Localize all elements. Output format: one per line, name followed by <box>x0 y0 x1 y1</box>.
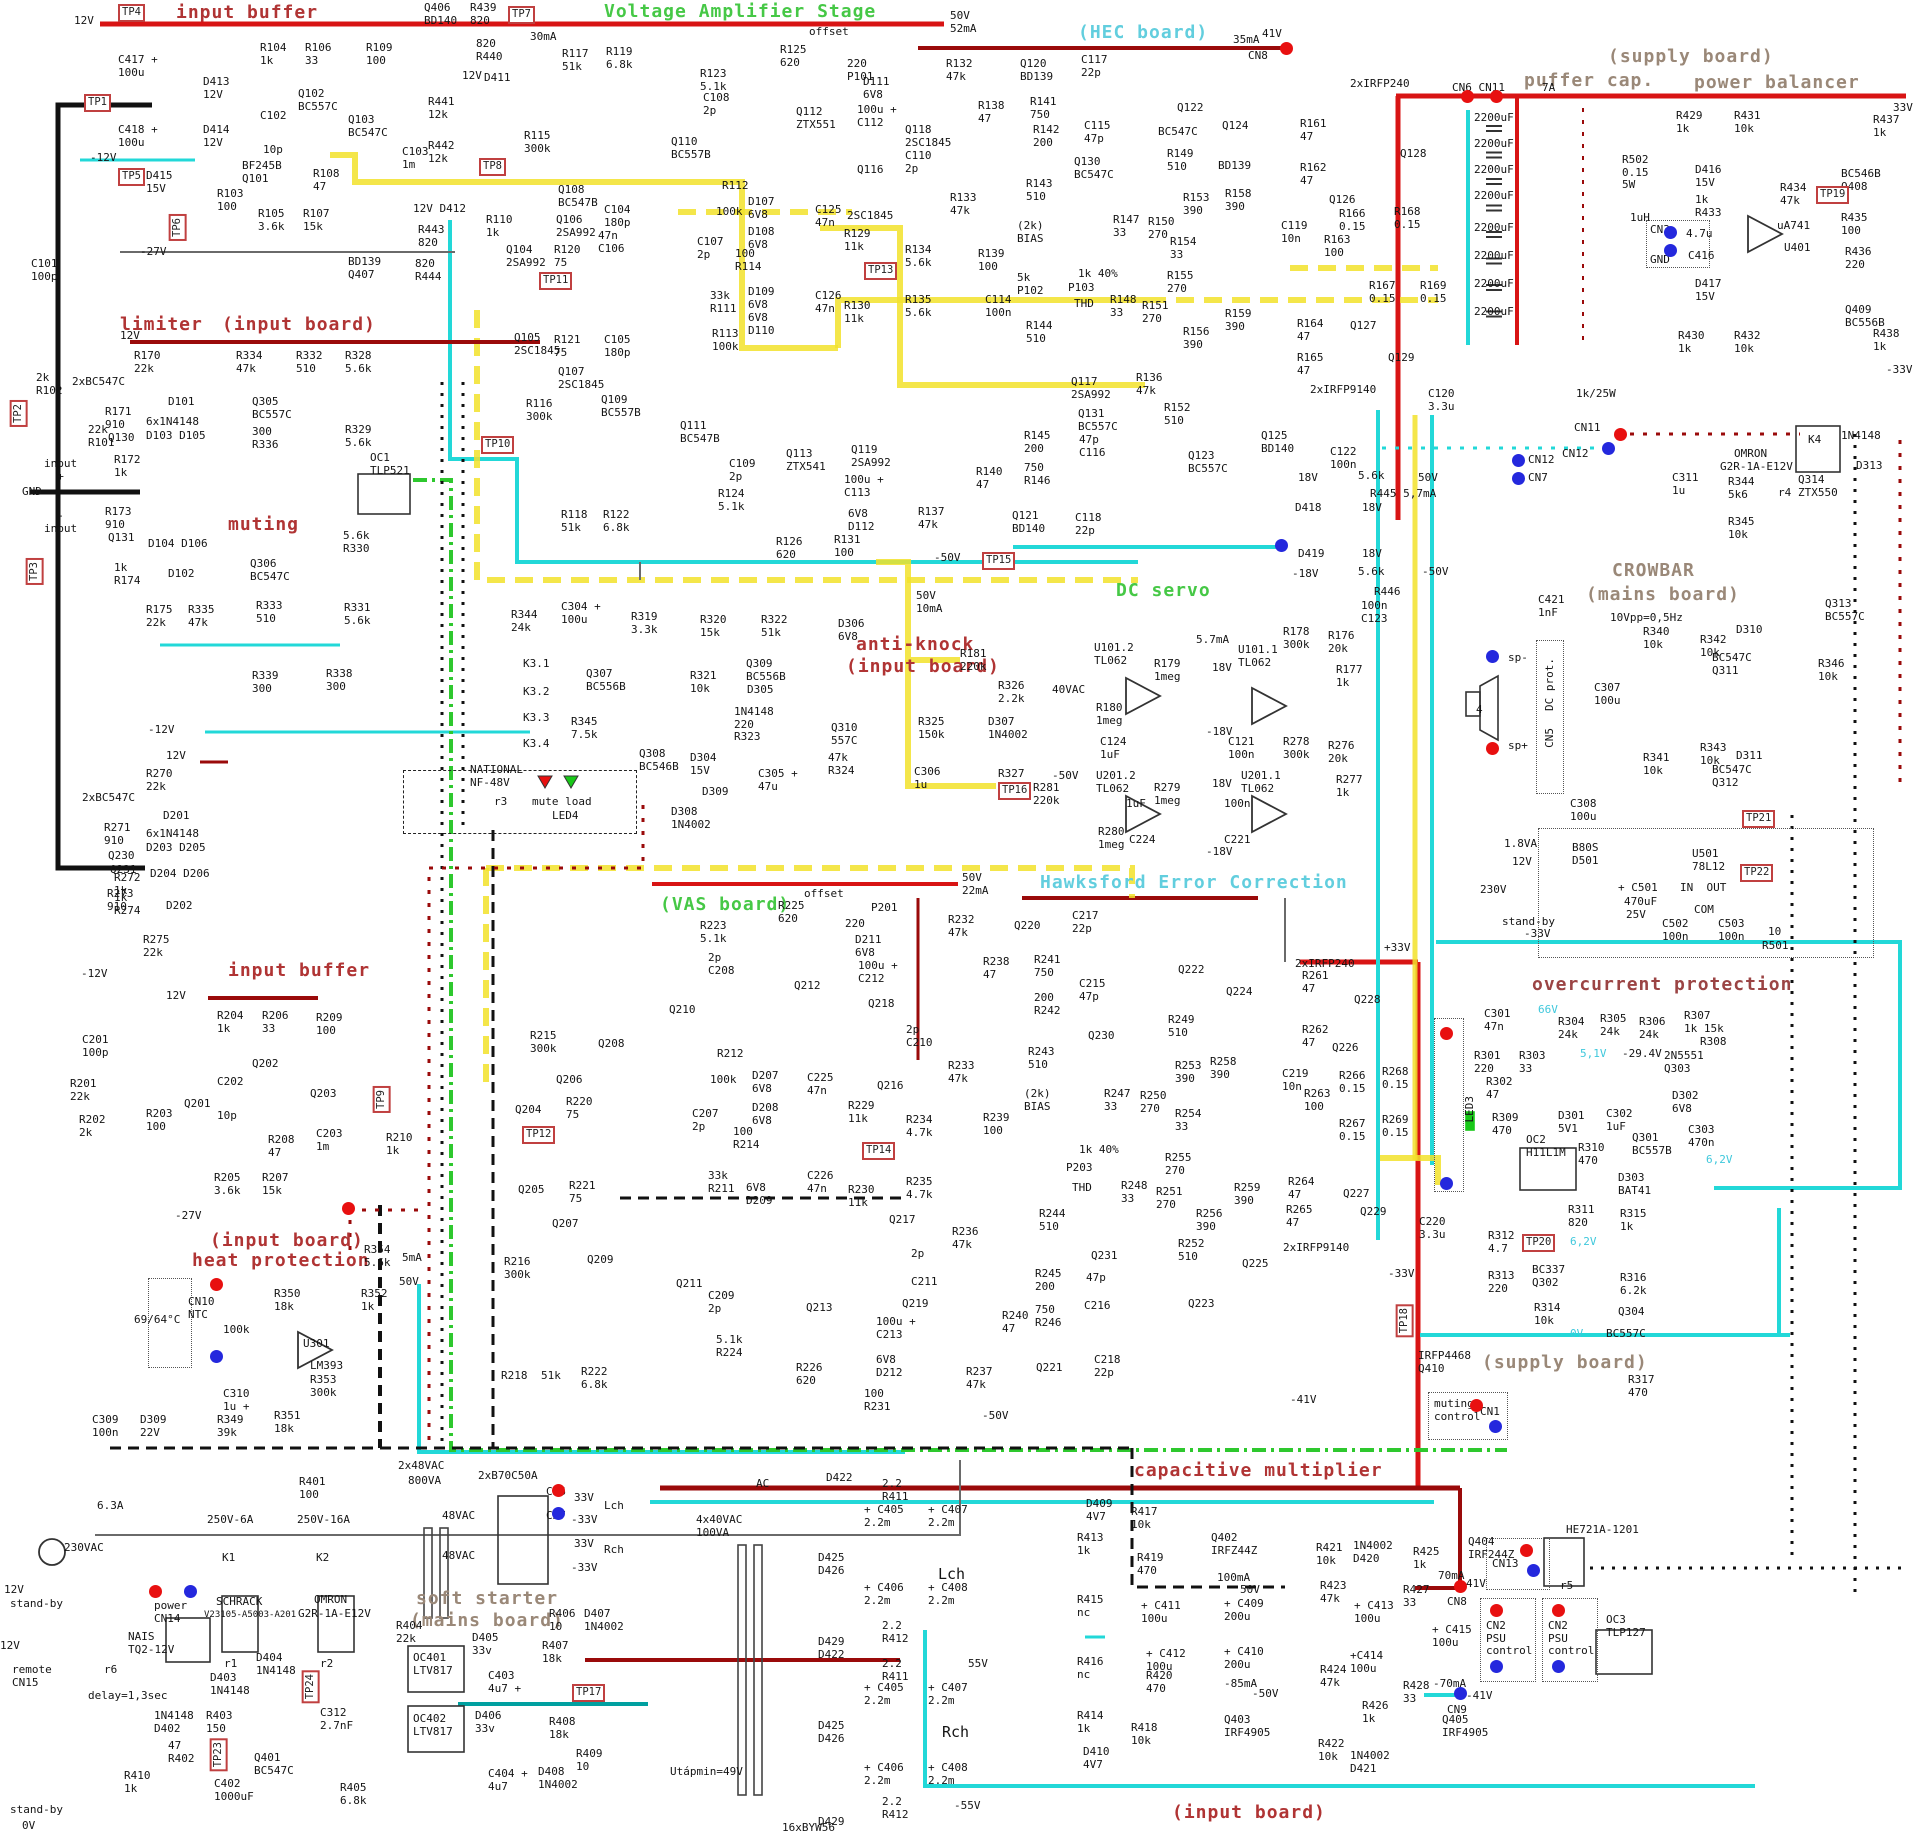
connector-dot-red[interactable] <box>1520 1544 1533 1557</box>
component-label-r278: R278 300k <box>1283 736 1310 761</box>
component-label-r4: r4 <box>1778 487 1791 500</box>
testpoint-tp19[interactable]: TP19 <box>1816 186 1849 204</box>
connector-dot-red[interactable] <box>1486 742 1499 755</box>
component-label-2xirfp9140: 2xIRFP9140 <box>1310 384 1376 397</box>
component-label-r502: R502 0.15 5W <box>1622 154 1649 192</box>
component-label-r123: R123 5.1k <box>700 68 727 93</box>
component-label-c414: +C414 100u <box>1350 1650 1383 1675</box>
component-label-750: 750 R146 <box>1024 462 1051 487</box>
component-label-q211: Q211 <box>676 1278 703 1291</box>
component-label-33v: -33V <box>571 1562 598 1575</box>
component-label-d101: D101 <box>168 396 195 409</box>
section-title-dc-servo: DC servo <box>1116 580 1211 601</box>
connector-dot-blue[interactable] <box>1440 1177 1453 1190</box>
component-label-d429: D429 D422 <box>818 1636 845 1661</box>
component-label-c310: C310 1u + <box>223 1388 250 1413</box>
testpoint-tp18[interactable]: TP18 <box>1396 1304 1414 1337</box>
component-label-q304: Q304 <box>1618 1306 1645 1319</box>
component-label-r267: R267 0.15 <box>1339 1118 1366 1143</box>
component-label-33v: -33V <box>571 1514 598 1527</box>
testpoint-tp15[interactable]: TP15 <box>982 552 1015 570</box>
component-label-1uf: 1uF <box>1126 798 1146 811</box>
component-label-5-7ma: 5.7mA <box>1196 634 1229 647</box>
component-label-q409: Q409 BC556B <box>1845 304 1885 329</box>
component-label-r310: R310 470 <box>1578 1142 1605 1167</box>
component-label-cn10: CN10 NTC <box>188 1296 215 1321</box>
component-label-d422: D422 <box>826 1472 853 1485</box>
testpoint-tp7[interactable]: TP7 <box>508 6 535 24</box>
component-label-dc-prot: DC prot. <box>1544 658 1557 711</box>
component-label-r159: R159 390 <box>1225 308 1252 333</box>
component-label-c409: + C409 200u <box>1224 1598 1264 1623</box>
component-label-r141: R141 750 <box>1030 96 1057 121</box>
component-label-d411: D411 <box>484 72 511 85</box>
testpoint-tp9[interactable]: TP9 <box>373 1086 391 1113</box>
component-label-r140: R140 47 <box>976 466 1003 491</box>
connector-dot-blue[interactable] <box>1512 472 1525 485</box>
connector-dot-red[interactable] <box>1490 1604 1503 1617</box>
component-label-r339: R339 300 <box>252 670 279 695</box>
component-label-d414: D414 12V <box>203 124 230 149</box>
connector-dot-blue[interactable] <box>1275 539 1288 552</box>
component-label-18v: 18V <box>1212 662 1232 675</box>
component-label-q221: Q221 <box>1036 1362 1063 1375</box>
connector-dot-blue[interactable] <box>1486 650 1499 663</box>
component-label-r133: R133 47k <box>950 192 977 217</box>
component-label-d404: D404 1N4148 <box>256 1652 296 1677</box>
component-label-r107: R107 15k <box>303 208 330 233</box>
connector-dot-red[interactable] <box>1552 1604 1565 1617</box>
component-label-omron: OMRON <box>314 1594 347 1607</box>
connector-dot-blue[interactable] <box>1489 1420 1502 1433</box>
component-label-schrack: SCHRACK <box>216 1596 262 1609</box>
component-label-r147: R147 33 <box>1113 214 1140 239</box>
component-label-50v: 50V <box>399 1276 419 1289</box>
component-label-q229: Q229 <box>1360 1206 1387 1219</box>
component-label-r118: R118 51k <box>561 509 588 534</box>
connector-dot-red[interactable] <box>149 1585 162 1598</box>
component-label-r418: R418 10k <box>1131 1722 1158 1747</box>
section-title-hec-board: (HEC board) <box>1078 22 1208 43</box>
component-label-12v: -12V <box>81 968 108 981</box>
component-label-u101-2: U101.2 TL062 <box>1094 642 1134 667</box>
component-label-led4: LED4 <box>552 810 579 823</box>
component-label-r161: R161 47 <box>1300 118 1327 143</box>
section-title-anti-knock: anti-knock <box>856 634 974 655</box>
component-label-q109: Q109 BC557B <box>601 394 641 419</box>
component-label-bd139: BD139 Q407 <box>348 256 381 281</box>
component-label-33v: +33V <box>1384 942 1411 955</box>
component-label-power: power CN14 <box>154 1600 187 1625</box>
component-label-6x1n4148: 6x1N4148 <box>146 828 199 841</box>
component-label-q129: Q129 <box>1388 352 1415 365</box>
component-label-c421: C421 1nF <box>1538 594 1565 619</box>
component-label-c117: C117 22p <box>1081 54 1108 79</box>
component-label-cn1: CN1 <box>1480 1406 1500 1419</box>
testpoint-tp13[interactable]: TP13 <box>864 262 897 280</box>
connector-dot-red[interactable] <box>1470 1399 1483 1412</box>
schematic-canvas: input bufferVoltage Amplifier Stage(HEC … <box>0 0 1920 1834</box>
connector-dot-blue[interactable] <box>1490 1660 1503 1673</box>
component-label-r137: R137 47k <box>918 506 945 531</box>
component-label-c403: C403 4u7 + <box>488 1670 521 1695</box>
component-label-d111: D111 6V8 <box>863 76 890 101</box>
component-label-r437: R437 1k <box>1873 114 1900 139</box>
component-label-100u: 100u + C112 <box>857 104 897 129</box>
connector-dot-red[interactable] <box>1454 1580 1467 1593</box>
component-label-c207: C207 2p <box>692 1108 719 1133</box>
component-label-r353: R353 300k <box>310 1374 337 1399</box>
component-label-29-4v: -29.4V <box>1622 1048 1662 1061</box>
component-label-q218: Q218 <box>868 998 895 1011</box>
component-label-r247: R247 33 <box>1104 1088 1131 1113</box>
component-label-12v: 12V <box>166 990 186 1003</box>
component-label-2n5551: 2N5551 Q303 <box>1664 1050 1704 1075</box>
component-label-1n4148: 1N4148 D402 <box>154 1710 194 1735</box>
component-label-r138: R138 47 <box>978 100 1005 125</box>
testpoint-tp8[interactable]: TP8 <box>479 158 506 176</box>
connector-dot-blue[interactable] <box>1454 1687 1467 1700</box>
component-label-r106: R106 33 <box>305 42 332 67</box>
component-label-25v: 25V <box>1626 909 1646 922</box>
component-label-r409: R409 10 <box>576 1748 603 1773</box>
connector-dot-blue[interactable] <box>552 1507 565 1520</box>
component-label-r432: R432 10k <box>1734 330 1761 355</box>
connector-dot-blue[interactable] <box>1602 442 1615 455</box>
component-label-r262: R262 47 <box>1302 1024 1329 1049</box>
connector-dot-blue[interactable] <box>210 1350 223 1363</box>
section-title-soft-starter: soft starter <box>416 1588 558 1609</box>
component-label-12v: 12V <box>4 1584 24 1597</box>
component-label-41v: -41V <box>1466 1690 1493 1703</box>
component-label-r259: R259 390 <box>1234 1182 1261 1207</box>
component-label-c306: C306 1u <box>914 766 941 791</box>
component-label-r445-5-7ma: R445 5,7mA <box>1370 488 1436 501</box>
connector-dot-red[interactable] <box>1280 42 1293 55</box>
component-label-r5: r5 <box>1560 1580 1573 1593</box>
component-label-r151: R151 270 <box>1142 300 1169 325</box>
component-label-27v: -27V <box>175 1210 202 1223</box>
opamp-symbol <box>1252 688 1286 724</box>
component-label-r264: R264 47 <box>1288 1176 1315 1201</box>
component-label-r436: R436 220 <box>1845 246 1872 271</box>
component-label-r216: R216 300k <box>504 1256 531 1281</box>
component-label-1k-40: 1k 40% <box>1078 268 1118 281</box>
component-label-national: NATIONAL NF-48V <box>470 764 523 789</box>
component-label-r165: R165 47 <box>1297 352 1324 377</box>
component-label-r317: R317 470 <box>1628 1374 1655 1399</box>
component-label-r401: R401 100 <box>299 1476 326 1501</box>
component-label-r424: R424 47k <box>1320 1664 1347 1689</box>
component-label-47p: 47p <box>1086 1272 1106 1285</box>
connector-dot-red[interactable] <box>1440 1027 1453 1040</box>
component-label-r2: r2 <box>320 1658 333 1671</box>
component-label-r179: R179 1meg <box>1154 658 1181 683</box>
testpoint-tp12[interactable]: TP12 <box>522 1126 555 1144</box>
component-label-r180: R180 1meg <box>1096 702 1123 727</box>
component-label-r119: R119 6.8k <box>606 46 633 71</box>
component-label-r405: R405 6.8k <box>340 1782 367 1807</box>
component-label-u201-1: U201.1 TL062 <box>1241 770 1281 795</box>
connector-dot-red[interactable] <box>342 1202 355 1215</box>
component-label-r333: R333 510 <box>256 600 283 625</box>
component-label-41v: -41V <box>1290 1394 1317 1407</box>
component-label-c118: C118 22p <box>1075 512 1102 537</box>
testpoint-tp20[interactable]: TP20 <box>1522 1234 1555 1252</box>
testpoint-tp6[interactable]: TP6 <box>169 214 187 241</box>
component-label-2200uf: 2200uF <box>1474 222 1514 235</box>
wire-maroon-57 <box>429 805 643 1445</box>
testpoint-tp24[interactable]: TP24 <box>302 1670 320 1703</box>
component-label-q401: Q401 BC547C <box>254 1752 294 1777</box>
component-label-12v: 12V <box>462 70 482 83</box>
component-label-d408: D408 1N4002 <box>538 1766 578 1791</box>
opamp-symbol <box>1126 678 1160 714</box>
testpoint-tp1[interactable]: TP1 <box>84 94 111 112</box>
component-label-33k: 33k R211 <box>708 1170 735 1195</box>
component-label-5ma: 5mA <box>402 1252 422 1265</box>
component-label-r305: R305 24k <box>1600 1013 1627 1038</box>
component-label-p203: P203 <box>1066 1162 1093 1175</box>
component-label-2p: 2p <box>911 1248 924 1261</box>
component-label-p201: P201 <box>871 902 898 915</box>
component-label-100u: 100u + C213 <box>876 1316 916 1341</box>
testpoint-tp22[interactable]: TP22 <box>1740 864 1773 882</box>
component-label-k2: K2 <box>316 1552 329 1565</box>
component-label-d407: D407 1N4002 <box>584 1608 624 1633</box>
component-label-r306: R306 24k <box>1639 1016 1666 1041</box>
component-label-12v: 12V <box>74 15 94 28</box>
testpoint-tp21[interactable]: TP21 <box>1742 810 1775 828</box>
component-label-r331: R331 5.6k <box>344 602 371 627</box>
component-label-q212: Q212 <box>794 980 821 993</box>
testpoint-tp4[interactable]: TP4 <box>118 4 145 22</box>
component-label-c408: + C408 2.2m <box>928 1762 968 1787</box>
component-label-d425: D425 D426 <box>818 1720 845 1745</box>
component-label-r307: R307 1k 15k <box>1684 1010 1724 1035</box>
component-label-r155: R155 270 <box>1167 270 1194 295</box>
component-label-ac: AC <box>756 1478 769 1491</box>
connector-dot-blue[interactable] <box>1664 226 1677 239</box>
component-label-66v: 66V <box>1538 1004 1558 1017</box>
component-label-r428: R428 33 <box>1403 1680 1430 1705</box>
component-label-2xirfp240: 2xIRFP240 <box>1350 78 1410 91</box>
component-label-d405: D405 33v <box>472 1632 499 1657</box>
component-label-r329: R329 5.6k <box>345 424 372 449</box>
component-label-r135: R135 5.6k <box>905 294 932 319</box>
component-label-q226: Q226 <box>1332 1042 1359 1055</box>
component-label-d419: D419 <box>1298 548 1325 561</box>
connector-dot-red[interactable] <box>210 1278 223 1291</box>
component-label-r109: R109 100 <box>366 42 393 67</box>
component-label-r340: R340 10k <box>1643 626 1670 651</box>
component-label-r144: R144 510 <box>1026 320 1053 345</box>
component-label-r441: R441 12k <box>428 96 455 121</box>
component-label-r223: R223 5.1k <box>700 920 727 945</box>
component-label-d307: D307 1N4002 <box>988 716 1028 741</box>
section-title-capacitive-multiplier: capacitive multiplier <box>1134 1460 1383 1481</box>
component-label-c110: C110 2p <box>905 150 932 175</box>
component-label-33v: 33V <box>574 1538 594 1551</box>
component-label-300: 300 R336 <box>252 426 279 451</box>
component-label-d308: D308 1N4002 <box>671 806 711 831</box>
component-label-1n4002: 1N4002 D420 <box>1353 1540 1393 1565</box>
component-label-r244: R244 510 <box>1039 1208 1066 1233</box>
component-label-r212: R212 <box>717 1048 744 1061</box>
component-label-r208: R208 47 <box>268 1134 295 1159</box>
component-label-c215: C215 47p <box>1079 978 1106 1003</box>
component-label-d306: D306 6V8 <box>838 618 865 643</box>
component-label-c406: + C406 2.2m <box>864 1582 904 1607</box>
connector-dot-blue[interactable] <box>1664 244 1677 257</box>
mains-plug-symbol <box>39 1539 65 1565</box>
component-label-1-8va: 1.8VA <box>1504 838 1537 851</box>
component-label-r413: R413 1k <box>1077 1532 1104 1557</box>
component-label-2-2: 2.2 R411 <box>882 1478 909 1503</box>
component-label-1k-25w: 1k/25W <box>1576 388 1616 401</box>
connector-dot-red[interactable] <box>1461 90 1474 103</box>
testpoint-tp16[interactable]: TP16 <box>998 782 1031 800</box>
testpoint-tp10[interactable]: TP10 <box>481 436 514 454</box>
component-label-18v: -18V <box>1292 568 1319 581</box>
component-label-r344: R344 5k6 <box>1728 476 1755 501</box>
connector-dot-blue[interactable] <box>184 1585 197 1598</box>
component-label-2k: 2k R102 <box>36 372 63 397</box>
component-label-q117: Q117 2SA992 <box>1071 376 1111 401</box>
component-label-sp: sp- <box>1508 652 1528 665</box>
component-label-r314: R314 10k <box>1534 1302 1561 1327</box>
component-label-r303: R303 33 <box>1519 1050 1546 1075</box>
testpoint-tp2[interactable]: TP2 <box>10 400 28 427</box>
component-label-2200uf: 2200uF <box>1474 278 1514 291</box>
component-label-2200uf: 2200uF <box>1474 138 1514 151</box>
component-label-ua741: uA741 <box>1777 220 1810 233</box>
component-label-c311: C311 1u <box>1672 472 1699 497</box>
component-label-q113: Q113 ZTX541 <box>786 448 826 473</box>
component-label-g2r-1a-e12v: G2R-1A-E12V <box>1720 461 1793 474</box>
section-title-supply-board: (supply board) <box>1482 1352 1648 1373</box>
component-label-cn2: CN2 PSU control <box>1548 1620 1594 1658</box>
component-label-470uf: 470uF <box>1624 896 1657 909</box>
connector-dot-blue[interactable] <box>1552 1660 1565 1673</box>
component-label-r129: R129 11k <box>844 228 871 253</box>
component-label-r250: R250 270 <box>1140 1090 1167 1115</box>
component-label-50v: 50V 22mA <box>962 872 989 897</box>
component-label-2200uf: 2200uF <box>1474 190 1514 203</box>
testpoint-tp14[interactable]: TP14 <box>862 1142 895 1160</box>
component-label-r304: R304 24k <box>1558 1016 1585 1041</box>
section-title-heat-protection: heat protection <box>192 1250 370 1271</box>
component-label-d413: D413 12V <box>203 76 230 101</box>
connector-dot-red[interactable] <box>552 1484 565 1497</box>
component-label-d410: D410 4V7 <box>1083 1746 1110 1771</box>
component-label-cn8: CN8 <box>1248 50 1268 63</box>
testpoint-tp5[interactable]: TP5 <box>118 168 145 186</box>
component-label-c125: C125 47n <box>815 204 842 229</box>
component-label-55v: -55V <box>954 1800 981 1813</box>
component-label-bf245b: BF245B Q101 <box>242 160 282 185</box>
component-label-100k: 100k <box>716 206 743 219</box>
testpoint-tp3[interactable]: TP3 <box>26 558 44 585</box>
component-label-d304: D304 15V <box>690 752 717 777</box>
component-label-47k: 47k R324 <box>828 752 855 777</box>
component-label-0v: 0V <box>22 1820 35 1833</box>
component-label-x: - input <box>44 510 77 535</box>
component-label-r112: R112 <box>722 180 749 193</box>
component-label-q205: Q205 <box>518 1184 545 1197</box>
component-label-2k: (2k) BIAS <box>1017 220 1044 245</box>
component-label-47n: 47n C106 <box>598 230 625 255</box>
component-label-r154: R154 33 <box>1170 236 1197 261</box>
component-label-q108: Q108 BC547B <box>558 184 598 209</box>
component-label-r425: R425 1k <box>1413 1546 1440 1571</box>
component-label-r338: R338 300 <box>326 668 353 693</box>
component-label-oc402: OC402 LTV817 <box>413 1713 453 1738</box>
testpoint-tp17[interactable]: TP17 <box>572 1684 605 1702</box>
component-label-q102: Q102 BC557C <box>298 88 338 113</box>
component-label-q110: Q110 BC557B <box>671 136 711 161</box>
component-label-offset: offset <box>804 888 844 901</box>
component-label-he721a-1201: HE721A-1201 <box>1566 1524 1639 1537</box>
testpoint-tp23[interactable]: TP23 <box>210 1738 228 1771</box>
component-label-c303: C303 470n <box>1688 1124 1715 1149</box>
component-label-6v8: 6V8 D110 <box>748 312 775 337</box>
component-label-stand-by: stand-by <box>10 1598 63 1611</box>
component-label-820: 820 R440 <box>476 38 503 63</box>
testpoint-tp11[interactable]: TP11 <box>539 272 572 290</box>
connector-dot-blue[interactable] <box>1527 1564 1540 1577</box>
component-label-gnd: GND <box>22 486 42 499</box>
component-label-35ma: 35mA <box>1233 34 1260 47</box>
component-label-r255: R255 270 <box>1165 1152 1192 1177</box>
component-label-r269: R269 0.15 <box>1382 1114 1409 1139</box>
component-label-d302: D302 6V8 <box>1672 1090 1699 1115</box>
transformer-winding <box>754 1545 762 1795</box>
component-label-r218: R218 <box>501 1370 528 1383</box>
component-label-q107: Q107 2SC1845 <box>558 366 604 391</box>
component-label-r427: R427 33 <box>1403 1584 1430 1609</box>
component-label-q217: Q217 <box>889 1214 916 1227</box>
component-label-r210: R210 1k <box>386 1132 413 1157</box>
connector-dot-blue[interactable] <box>1512 454 1525 467</box>
component-label-33k: 33k R111 <box>710 290 737 315</box>
component-label-r354: R354 5.6k <box>364 1244 391 1269</box>
connector-dot-red[interactable] <box>1490 90 1503 103</box>
component-label-c410: + C410 200u <box>1224 1646 1264 1671</box>
component-label-d429: D429 <box>818 1816 845 1829</box>
component-label-u301: U301 <box>303 1338 330 1351</box>
component-label-47: 47 R402 <box>168 1740 195 1765</box>
component-label-cn12: CN12 <box>1528 454 1555 467</box>
component-label-q125: Q125 BD140 <box>1261 430 1294 455</box>
component-label-k3-2: K3.2 <box>523 686 550 699</box>
component-label-bc557c: BC557C <box>1606 1328 1646 1341</box>
component-label-d305: D305 <box>747 684 774 697</box>
connector-dot-red[interactable] <box>1614 428 1627 441</box>
component-label-r431: R431 10k <box>1734 110 1761 135</box>
section-title-voltage-amplifier-stage: Voltage Amplifier Stage <box>604 1 876 22</box>
component-label-6x1n4148: 6x1N4148 <box>146 416 199 429</box>
component-label-r322: R322 51k <box>761 614 788 639</box>
component-label-q223: Q223 <box>1188 1298 1215 1311</box>
component-label-q124: Q124 <box>1222 120 1249 133</box>
component-label-18v: 18V <box>1212 778 1232 791</box>
component-label-r164: R164 47 <box>1297 318 1324 343</box>
component-label-r443: R443 820 <box>418 224 445 249</box>
component-label-r226: R226 620 <box>796 1362 823 1387</box>
component-label-r222: R222 6.8k <box>581 1366 608 1391</box>
component-label-2p: 2p C208 <box>708 952 735 977</box>
